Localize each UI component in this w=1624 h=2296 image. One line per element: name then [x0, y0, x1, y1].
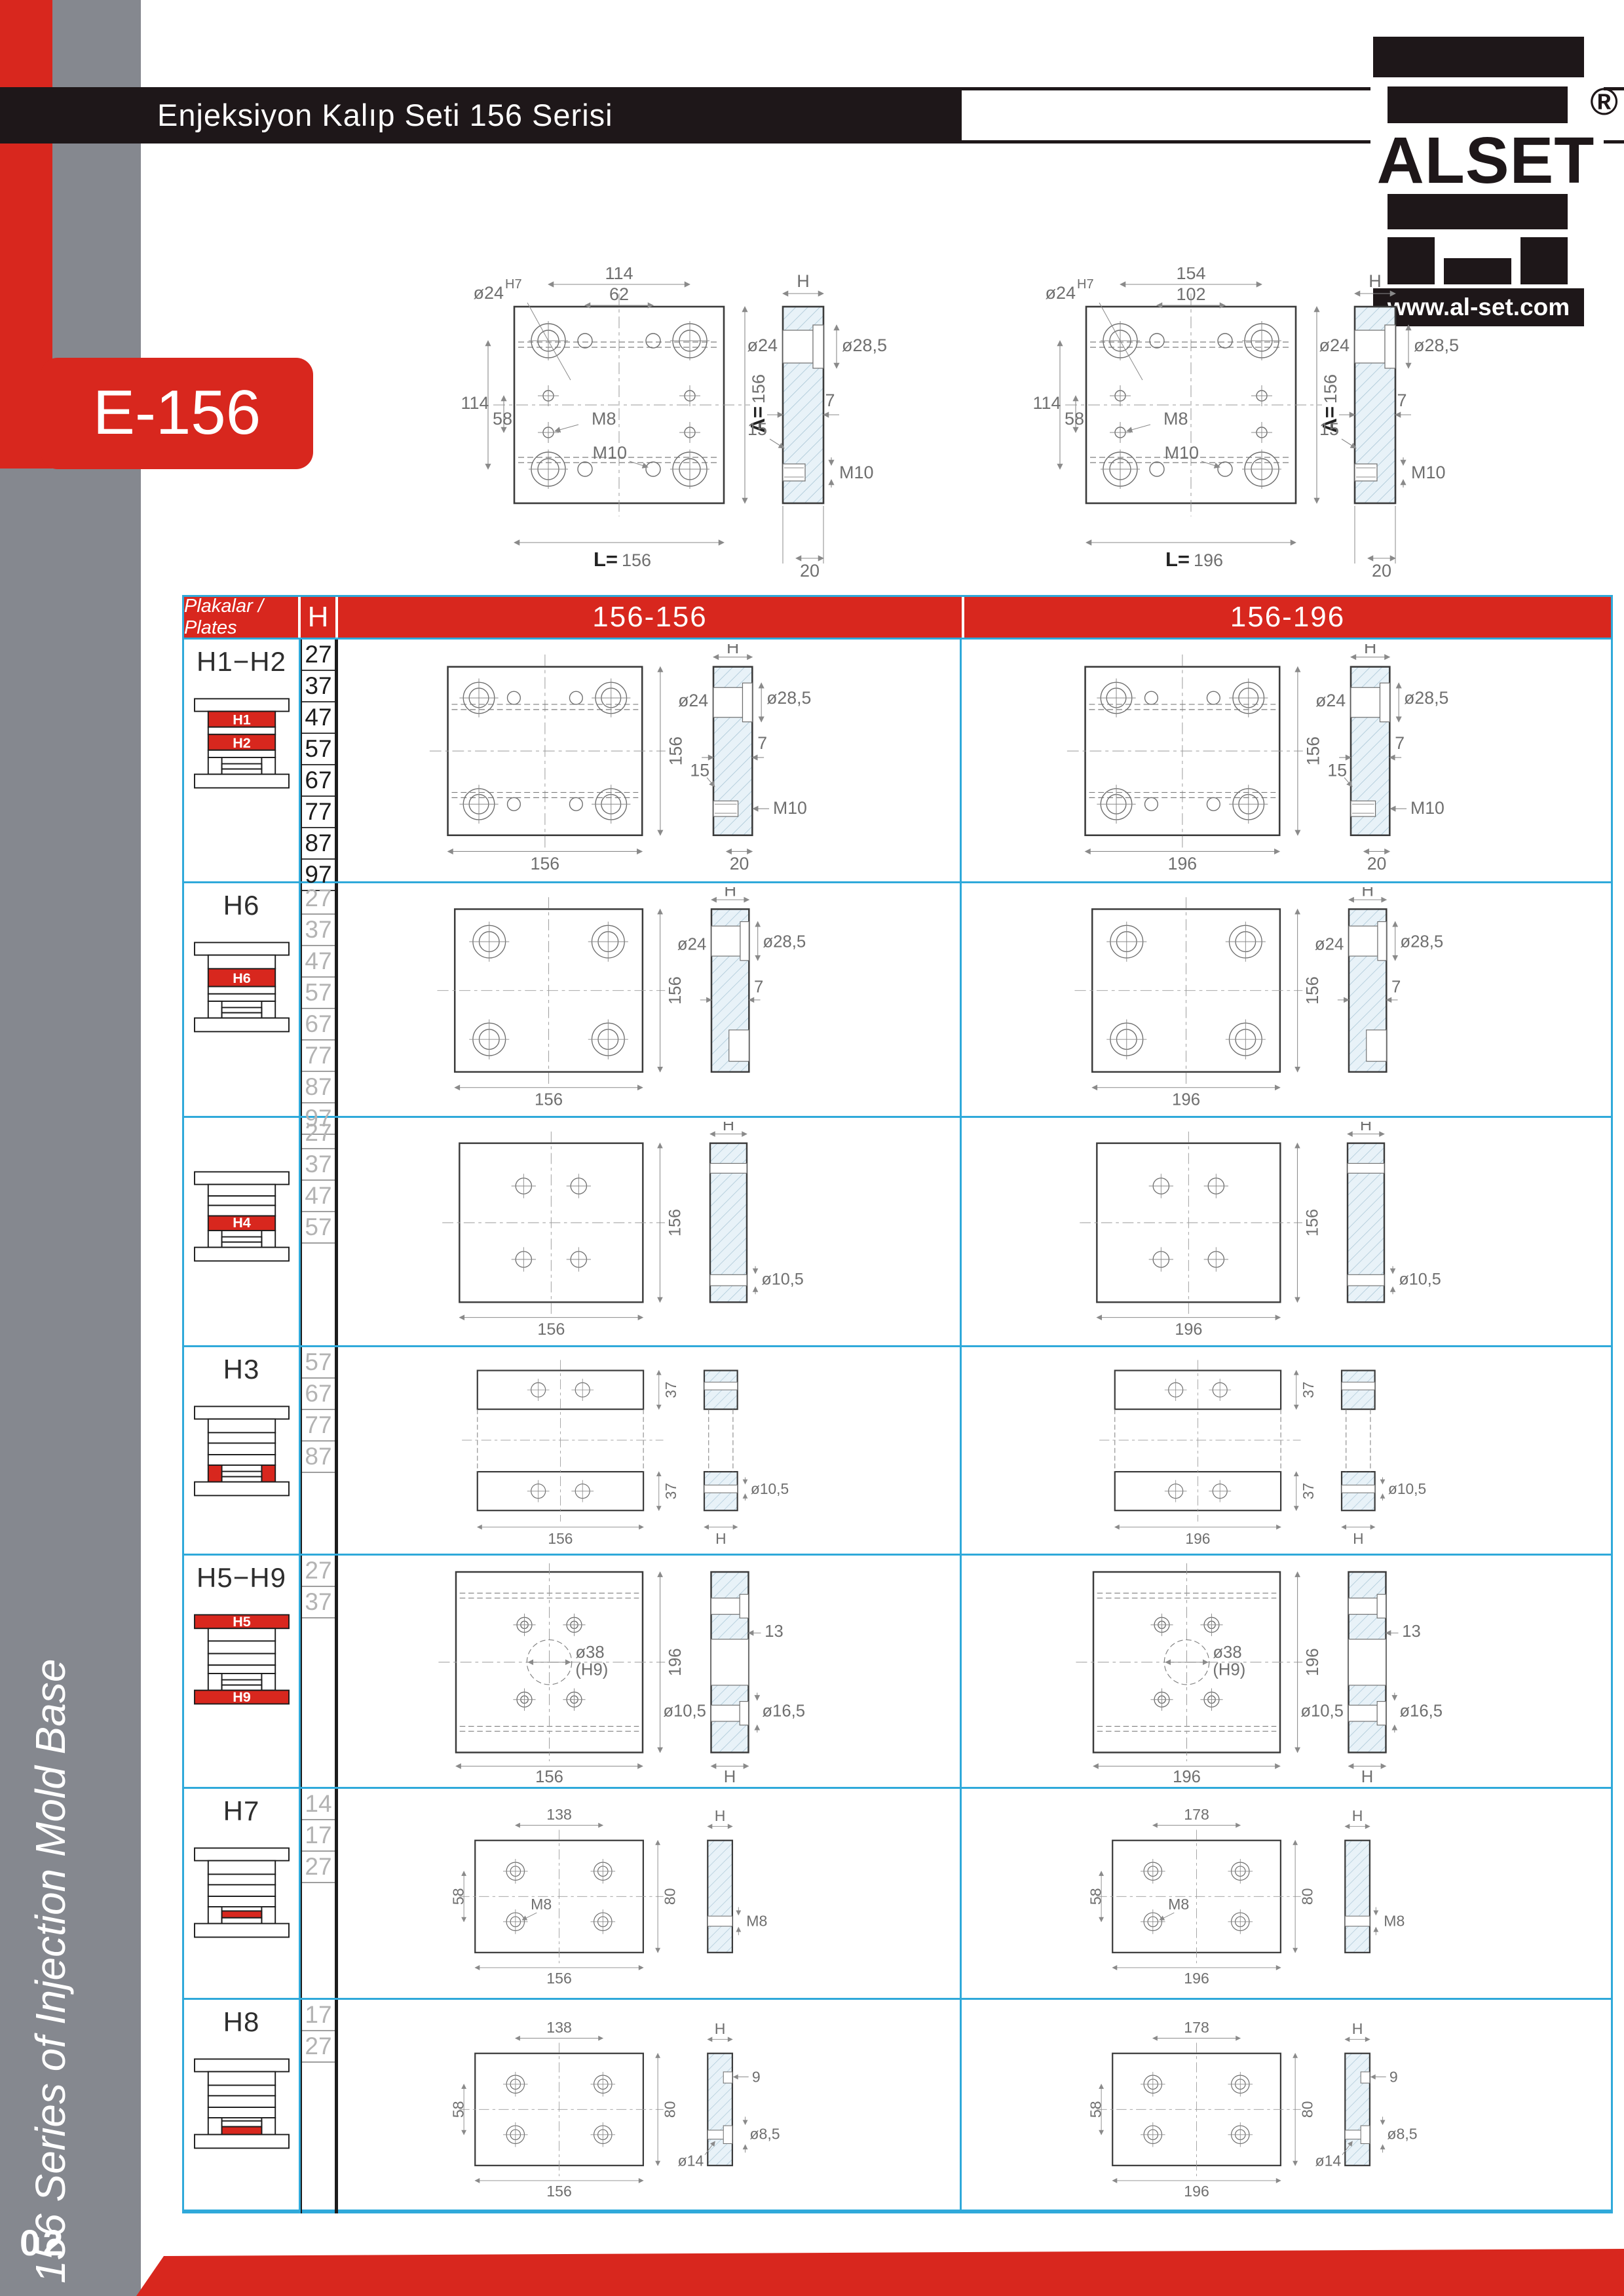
dim-label: ø8,5 [749, 2126, 780, 2143]
h-value: 27 [302, 1556, 335, 1587]
plates-cell: H3 [184, 1347, 301, 1554]
dim-label: 156 [622, 550, 651, 570]
dim-label: 196 [1184, 1969, 1209, 1986]
header-rule-bottom [962, 140, 1370, 143]
dim-label: 37 [662, 1381, 679, 1398]
dim-label: 196 [1175, 1320, 1202, 1338]
h-value: 37 [302, 1587, 335, 1618]
mold-stack-icon [189, 2055, 294, 2154]
dim-label: 62 [609, 284, 629, 304]
header-rule-top [962, 87, 1370, 90]
table-row: H5−H9 H5 H9 27 37 ø38 (H9) 13 ø10,5 ø [184, 1554, 1611, 1787]
dim-label: 156 [535, 1768, 563, 1784]
dim-label: 37 [662, 1482, 679, 1499]
dim-label: L= [594, 548, 618, 571]
dim-label: ø28,5 [766, 687, 811, 707]
drawing-cell-156-196: ø38 (H9) 13 ø10,5 ø16,5 196 196 H [962, 1556, 1611, 1787]
technical-drawing: H ø10,5 156 196 [1072, 1122, 1500, 1342]
h-value: 17 [302, 2000, 335, 2031]
icon-label: H6 [233, 970, 251, 986]
h-value: 87 [302, 1442, 335, 1473]
technical-drawing: 138 58 80 M8 156 H M8 [453, 1793, 845, 1995]
h-value: 27 [302, 640, 335, 671]
dim-label: H [724, 887, 736, 900]
dim-label: 196 [1194, 550, 1223, 570]
dim-label: H7 [1077, 277, 1094, 292]
dim-label: 156 [1304, 736, 1323, 765]
h-value: 27 [302, 2031, 335, 2063]
h-value: 27 [302, 1852, 335, 1883]
icon-label: H9 [233, 1689, 251, 1705]
dim-label: 58 [1090, 1888, 1104, 1905]
series-badge: E-156 [41, 358, 313, 469]
dim-label: H [727, 644, 739, 657]
technical-drawing: ø38 (H9) 13 ø10,5 ø16,5 196 196 H [1068, 1559, 1504, 1784]
drawing-cell-156-196: 178 58 80 M8 196 H M8 [962, 1789, 1611, 1998]
header-rule-bottom-right [1604, 140, 1624, 143]
dim-label: 7 [1391, 978, 1401, 996]
dim-label: 156 [1303, 1208, 1321, 1236]
h-value: 47 [302, 702, 335, 734]
dim-label: ø24 [1315, 935, 1344, 953]
row-label: H7 [223, 1795, 260, 1827]
dim-label: (H9) [575, 1660, 608, 1679]
dim-label: 15 [690, 760, 710, 780]
dim-label: 178 [1184, 2019, 1209, 2036]
mold-stack-icon: H6 [189, 938, 294, 1038]
h-value: 57 [302, 734, 335, 765]
dim-label: 7 [1395, 733, 1405, 753]
logo-brand-text: ALSET [1368, 123, 1604, 199]
page-number: 02 [20, 2221, 66, 2264]
table-row: H3 57 67 77 87 37 37 ø10,5 H 156 [184, 1345, 1611, 1554]
h-value: 37 [302, 915, 335, 946]
drawing-cell-156-156: H ø24 ø28,5 7 156 156 [338, 883, 962, 1116]
dim-label: 20 [730, 854, 749, 873]
dim-label: 156 [546, 1969, 572, 1986]
dim-label: 80 [1299, 1888, 1316, 1905]
drawing-cell-156-156: ø38 (H9) 13 ø10,5 ø16,5 196 156 H [338, 1556, 962, 1787]
mold-stack-icon [189, 1402, 294, 1502]
dim-label: ø28,5 [1404, 687, 1448, 707]
technical-drawing: 178 58 80 M8 196 H M8 [1090, 1793, 1482, 1995]
dim-label: ø28,5 [763, 932, 806, 951]
dim-label: ø28,5 [1400, 932, 1443, 951]
dim-label: 156 [666, 976, 685, 1004]
dim-label: ø10,5 [1300, 1702, 1344, 1720]
dim-label: ø8,5 [1387, 2126, 1417, 2143]
dim-label: ø16,5 [762, 1702, 805, 1720]
dim-label: 7 [758, 733, 768, 753]
drawing-cell-156-156: 37 37 ø10,5 H 156 [338, 1347, 962, 1554]
dim-label: ø14 [678, 2152, 704, 2170]
dim-label: ø24 [678, 690, 708, 710]
technical-drawing: ø38 (H9) 13 ø10,5 ø16,5 196 156 H [431, 1559, 867, 1784]
table-row: H1−H2 H1 H2 27 37 47 57 67 77 87 97 [184, 638, 1611, 881]
dim-label: 9 [1389, 2068, 1398, 2085]
catalog-page: Enjeksiyon Kalıp Seti 156 Serisi ® ALSET… [0, 0, 1624, 2296]
plates-cell: H5−H9 H5 H9 [184, 1556, 301, 1787]
overview-drawing-156-196: 154 102 ø24 H7 114 58 M8 M10 A= 156 L= 1… [1034, 267, 1486, 582]
overview-drawing-156-156: 114 62 ø24 H7 114 58 M8 M10 A= 156 L= 15… [462, 267, 914, 582]
h-value: 57 [302, 978, 335, 1009]
h-values-cell: 17 27 [301, 2000, 338, 2213]
row-label: H1−H2 [197, 646, 286, 678]
dim-label: 138 [546, 1806, 572, 1823]
dim-label: H [723, 1122, 734, 1134]
dim-label: 196 [1173, 1768, 1201, 1784]
dim-label: 9 [752, 2068, 761, 2085]
dim-label: 80 [662, 1888, 679, 1905]
dim-label: ø10,5 [751, 1480, 789, 1497]
dim-label: M10 [1411, 463, 1446, 482]
mold-stack-icon [189, 1844, 294, 1943]
table-header: Plakalar / Plates H 156-156 156-196 [184, 597, 1611, 638]
dim-label: H7 [505, 277, 522, 292]
page-title: Enjeksiyon Kalıp Seti 156 Serisi [157, 87, 962, 143]
logo-bar-icon [1388, 194, 1568, 229]
header-h: H [301, 597, 335, 638]
dim-label: ø24 [473, 283, 504, 303]
dim-label: 58 [493, 409, 512, 429]
drawing-cell-156-156: H ø10,5 156 156 [338, 1118, 962, 1345]
dim-label: 178 [1184, 1806, 1209, 1823]
drawing-cell-156-196: H ø10,5 156 196 [962, 1118, 1611, 1345]
h-values-cell: 27 37 [301, 1556, 338, 1787]
dim-label: ø24 [1045, 283, 1076, 303]
dim-label: 156 [548, 1529, 573, 1546]
dim-label: 20 [1367, 854, 1387, 873]
plates-cell: H8 [184, 2000, 301, 2213]
dim-label: ø10,5 [663, 1702, 706, 1720]
dim-label: 13 [765, 1622, 784, 1640]
h-values-cell: 14 17 27 [301, 1789, 338, 1998]
dim-label: 196 [1168, 854, 1198, 873]
table-row: H6 H6 27 37 47 57 67 77 87 97 H [184, 881, 1611, 1116]
dim-label: M10 [1164, 443, 1199, 463]
technical-drawing: 138 58 80 156 H 9 ø14 ø8,5 [453, 2006, 845, 2208]
dim-label: ø14 [1315, 2152, 1342, 2170]
icon-label: H2 [233, 735, 251, 751]
dim-label: 37 [1300, 1381, 1317, 1398]
technical-drawing: 178 58 80 196 H 9 ø14 ø8,5 [1090, 2006, 1482, 2208]
dim-label: 13 [1402, 1622, 1421, 1640]
technical-drawing: 37 37 ø10,5 H 156 [455, 1351, 842, 1550]
dim-label: 156 [1304, 976, 1322, 1004]
header-156-196: 156-196 [964, 597, 1611, 638]
plates-cell: H1−H2 H1 H2 [184, 640, 301, 881]
technical-drawing: 37 37 ø10,5 H 196 [1093, 1351, 1480, 1550]
mold-stack-icon: H5 H9 [189, 1611, 294, 1710]
dim-label: ø24 [677, 935, 706, 953]
mold-stack-icon: H4 [189, 1168, 294, 1267]
row-label: H6 [223, 890, 260, 921]
h-value: 47 [302, 1181, 335, 1212]
drawing-cell-156-196: 178 58 80 196 H 9 ø14 ø8,5 [962, 2000, 1611, 2213]
dim-label: 114 [462, 393, 489, 413]
title-bar: Enjeksiyon Kalıp Seti 156 Serisi [0, 87, 962, 143]
row-label: H8 [223, 2006, 260, 2038]
dim-label: 37 [1300, 1482, 1317, 1499]
dim-label: ø24 [1319, 335, 1350, 355]
h-value: 77 [302, 1041, 335, 1072]
h-values-cell: 27 37 47 57 67 77 87 97 [301, 640, 338, 881]
dim-label: L= [1165, 548, 1190, 571]
dim-label: 80 [662, 2101, 679, 2118]
table-row: H8 17 27 138 58 80 156 H 9 ø14 [184, 1998, 1611, 2213]
h-value: 17 [302, 1820, 335, 1852]
h-value: 87 [302, 828, 335, 860]
row-label: H5−H9 [197, 1562, 286, 1594]
h-value: 77 [302, 1410, 335, 1442]
dim-label: H [715, 1529, 726, 1546]
dim-label: 156 [531, 854, 560, 873]
dim-label: 156 [749, 374, 768, 404]
icon-label: H4 [233, 1214, 251, 1231]
dim-label: ø28,5 [842, 335, 887, 355]
plates-cell: H7 [184, 1789, 301, 1998]
dim-label: 58 [1090, 2101, 1104, 2118]
dim-label: ø28,5 [1414, 335, 1459, 355]
h-value: 57 [302, 1212, 335, 1244]
dim-label: 156 [666, 736, 686, 765]
dim-label: H [724, 1768, 736, 1784]
h-value: 57 [302, 1347, 335, 1379]
plates-table: Plakalar / Plates H 156-156 156-196 H1−H… [182, 595, 1613, 2213]
icon-label: H1 [233, 712, 251, 728]
dim-label: 114 [1034, 393, 1061, 413]
drawing-cell-156-156: 138 58 80 M8 156 H M8 [338, 1789, 962, 1998]
dim-label: 196 [1185, 1529, 1210, 1546]
technical-drawing: H ø24 ø28,5 7 15 M10 20 156 156 [422, 644, 875, 877]
technical-drawing: H ø10,5 156 156 [435, 1122, 863, 1342]
dim-label: H [1361, 1768, 1374, 1784]
dim-label: 7 [754, 978, 763, 996]
dim-label: 156 [1321, 374, 1340, 404]
dim-label: M8 [1168, 1895, 1189, 1912]
dim-label: 196 [1304, 1648, 1322, 1676]
dim-label: H [797, 271, 810, 291]
row-label: H3 [223, 1354, 260, 1385]
logo-bar-icon [1388, 86, 1568, 123]
header-plates: Plakalar / Plates [184, 597, 298, 638]
dim-label: 80 [1299, 2101, 1316, 2118]
dim-label: 15 [1328, 760, 1348, 780]
dim-label: 58 [1065, 409, 1084, 429]
dim-label: H [1352, 2020, 1363, 2037]
h-value: 14 [302, 1789, 335, 1820]
h-value: 67 [302, 1379, 335, 1410]
drawing-cell-156-196: 37 37 ø10,5 H 196 [962, 1347, 1611, 1554]
dim-label: 7 [825, 391, 835, 410]
dim-label: 156 [666, 1208, 684, 1236]
dim-label: M8 [531, 1895, 552, 1912]
h-value: 47 [302, 946, 335, 978]
dim-label: ø24 [747, 335, 778, 355]
dim-label: ø10,5 [761, 1270, 803, 1288]
table-row: H4 27 37 47 57 H ø10,5 156 156 [184, 1116, 1611, 1345]
h-value: 67 [302, 1009, 335, 1041]
dim-label: 196 [666, 1648, 685, 1676]
logo-bar-icon [1373, 37, 1584, 77]
mold-stack-icon: H1 H2 [189, 695, 294, 794]
h-value: 27 [302, 1118, 335, 1149]
dim-label: M10 [1410, 798, 1445, 818]
dim-label: M10 [592, 443, 627, 463]
dim-label: M10 [839, 463, 874, 482]
dim-label: 114 [605, 267, 633, 283]
dim-label: M8 [746, 1912, 767, 1929]
logo-block-icon [1520, 237, 1568, 284]
dim-label: ø10,5 [1399, 1270, 1441, 1288]
dim-label: 15 [747, 419, 767, 439]
dim-label: M8 [592, 409, 616, 429]
dim-label: H [1369, 271, 1382, 291]
dim-label: H [1364, 644, 1376, 657]
dim-label: 20 [800, 561, 820, 581]
technical-drawing: H ø24 ø28,5 7 156 156 [430, 887, 868, 1113]
dim-label: 196 [1184, 2183, 1209, 2200]
dim-label: H [715, 1807, 726, 1824]
drawing-cell-156-156: 138 58 80 156 H 9 ø14 ø8,5 [338, 2000, 962, 2213]
dim-label: H [1361, 887, 1374, 900]
h-value: 37 [302, 671, 335, 702]
drawing-cell-156-156: H ø24 ø28,5 7 15 M10 20 156 156 [338, 640, 962, 881]
dim-label: 156 [537, 1320, 565, 1338]
dim-label: 156 [546, 2183, 572, 2200]
dim-label: M8 [1163, 409, 1188, 429]
h-value: 37 [302, 1149, 335, 1181]
dim-label: 20 [1372, 561, 1391, 581]
bottom-ribbon [0, 2244, 1624, 2296]
dim-label: 58 [453, 2101, 466, 2118]
icon-label: H5 [233, 1613, 251, 1630]
drawing-cell-156-196: H ø24 ø28,5 7 156 196 [962, 883, 1611, 1116]
dim-label: ø16,5 [1399, 1702, 1443, 1720]
dim-label: H [1353, 1529, 1363, 1546]
dim-label: 15 [1319, 419, 1339, 439]
dim-label: 138 [546, 2019, 572, 2036]
dim-label: 58 [453, 1888, 466, 1905]
dim-label: 196 [1172, 1090, 1200, 1109]
plates-cell: H4 [184, 1118, 301, 1345]
sidebar-series-text: 156 Series of Injection Mold Base [26, 1471, 111, 2284]
dim-label: ø38 [575, 1643, 604, 1662]
dim-label: 7 [1397, 391, 1407, 410]
h-values-cell: 27 37 47 57 67 77 87 97 [301, 883, 338, 1116]
h-value: 77 [302, 797, 335, 828]
drawing-cell-156-196: H ø24 ø28,5 7 15 M10 20 156 196 [962, 640, 1611, 881]
dim-label: ø38 [1213, 1643, 1241, 1662]
dim-label: 154 [1176, 267, 1205, 283]
h-value: 27 [302, 883, 335, 915]
table-row: H7 14 17 27 138 58 80 M8 156 H [184, 1787, 1611, 1998]
h-value: 87 [302, 1072, 335, 1103]
dim-label: 102 [1176, 284, 1205, 304]
dim-label: M8 [1384, 1912, 1405, 1929]
technical-drawing: H ø24 ø28,5 7 15 M10 20 156 196 [1059, 644, 1513, 877]
dim-label: 156 [535, 1090, 563, 1109]
dim-label: H [715, 2020, 726, 2037]
technical-drawing: H ø24 ø28,5 7 156 196 [1067, 887, 1505, 1113]
h-value: 67 [302, 765, 335, 797]
dim-label: ø24 [1315, 690, 1346, 710]
dim-label: ø10,5 [1388, 1480, 1426, 1497]
registered-mark: ® [1590, 80, 1618, 124]
plates-cell: H6 H6 [184, 883, 301, 1116]
header-156-156: 156-156 [338, 597, 962, 638]
dim-label: M10 [773, 798, 807, 818]
dim-label: H [1360, 1122, 1372, 1134]
h-values-cell: 57 67 77 87 [301, 1347, 338, 1554]
dim-label: (H9) [1213, 1660, 1245, 1679]
dim-label: H [1352, 1807, 1363, 1824]
h-values-cell: 27 37 47 57 [301, 1118, 338, 1345]
